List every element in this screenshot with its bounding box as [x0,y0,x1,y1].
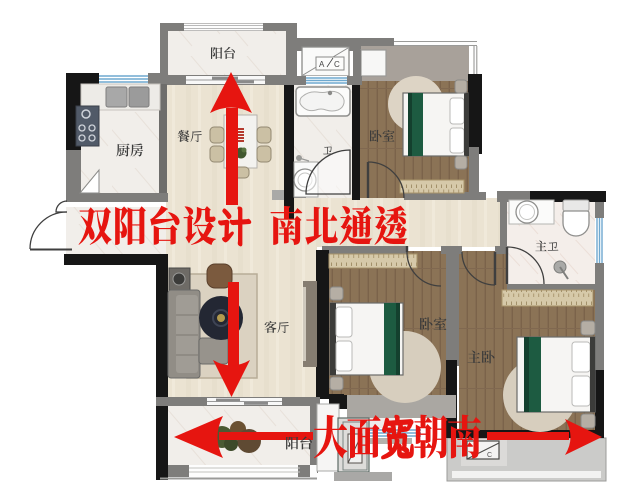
svg-text:A: A [319,60,325,69]
svg-text:C: C [487,452,492,459]
svg-text:C: C [334,60,340,69]
